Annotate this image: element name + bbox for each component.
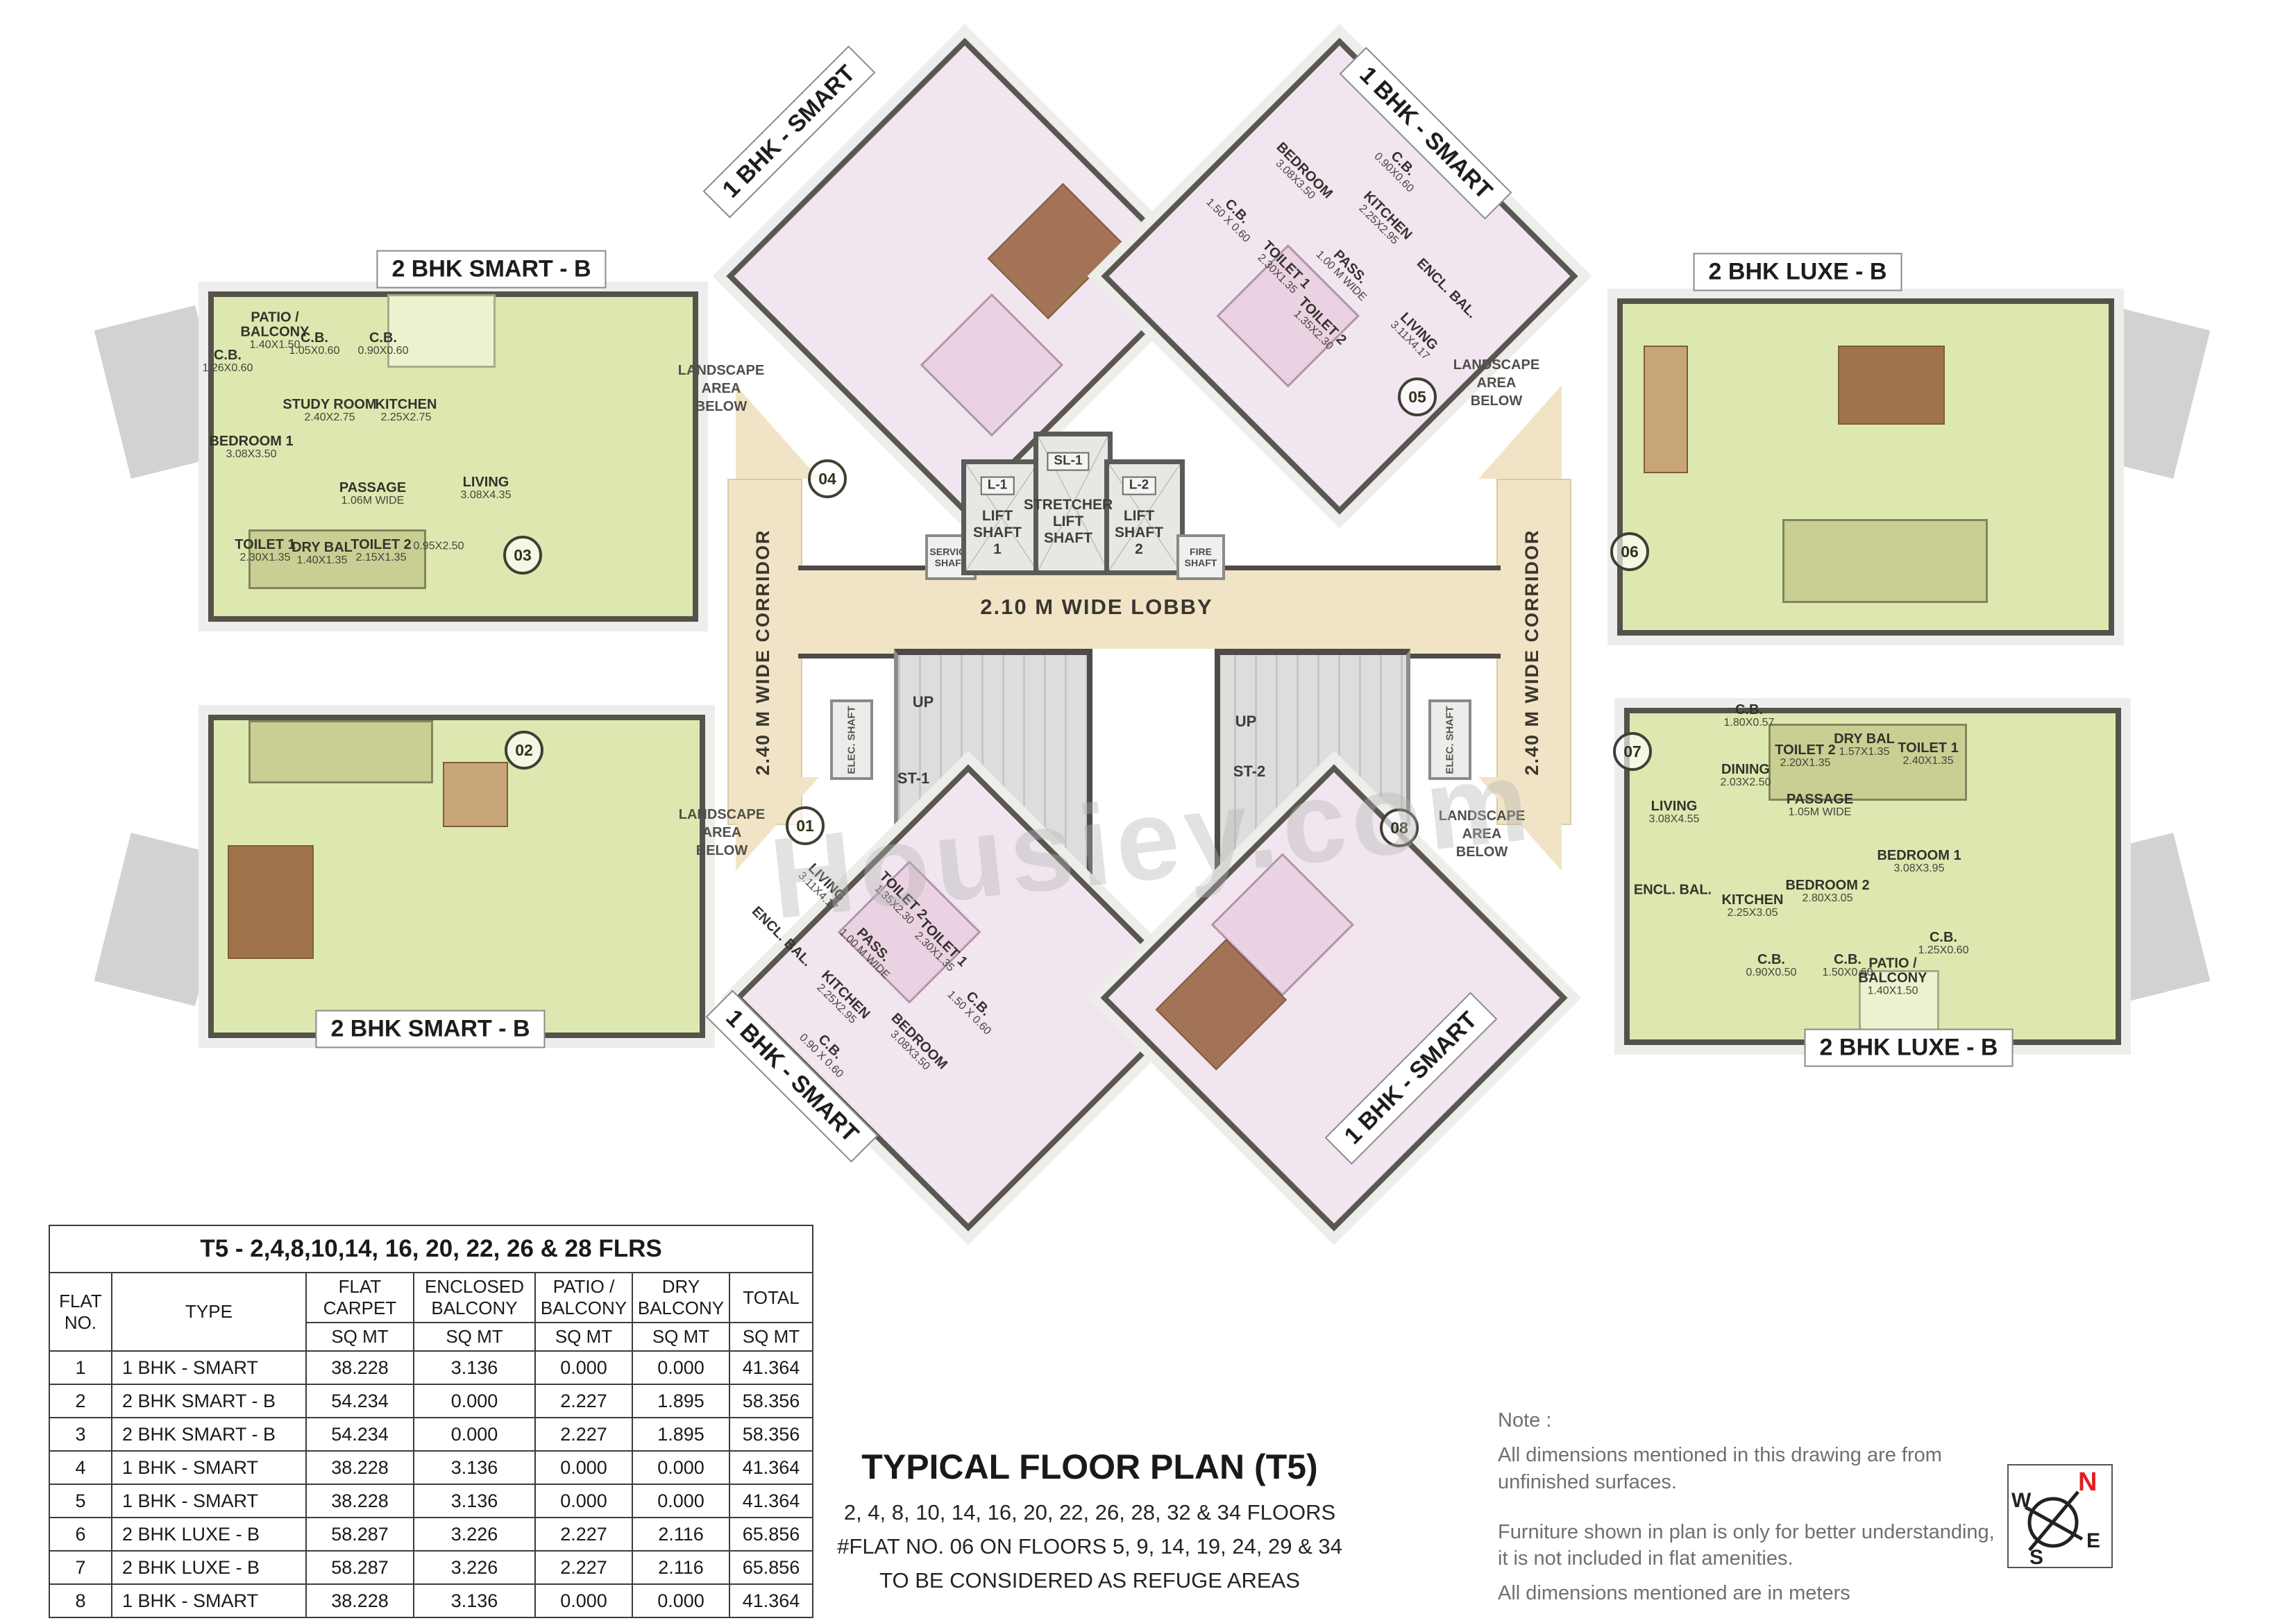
- furniture-sofa: [1644, 346, 1688, 473]
- cell-patio-balcony: 0.000: [535, 1451, 632, 1484]
- toilet-area: [248, 720, 433, 783]
- elec-shaft-label: ELEC. SHAFT: [846, 706, 858, 774]
- cell-total: 41.364: [729, 1451, 813, 1484]
- landscape-patch: [736, 385, 819, 479]
- unit-label: SQ MT: [306, 1323, 414, 1351]
- fire-shaft-label: FIRE SHAFT: [1179, 546, 1222, 568]
- col-flat-no: FLAT NO.: [49, 1273, 112, 1351]
- notes-heading: Note :: [1498, 1407, 2011, 1434]
- table-row: 2 2 BHK SMART - B 54.234 0.000 2.227 1.8…: [49, 1384, 813, 1418]
- cell-patio-balcony: 0.000: [535, 1484, 632, 1518]
- table-row: 7 2 BHK LUXE - B 58.287 3.226 2.227 2.11…: [49, 1551, 813, 1584]
- cell-dry-balcony: 1.895: [632, 1418, 729, 1451]
- notes-block: Note : All dimensions mentioned in this …: [1498, 1407, 2011, 1615]
- toilet-area: [248, 529, 426, 589]
- area-statement-table: T5 - 2,4,8,10,14, 16, 20, 22, 26 & 28 FL…: [49, 1225, 813, 1618]
- cell-patio-balcony: 0.000: [535, 1351, 632, 1384]
- col-total: TOTAL: [729, 1273, 813, 1323]
- cell-flat-carpet: 54.234: [306, 1384, 414, 1418]
- cell-dry-balcony: 2.116: [632, 1551, 729, 1584]
- compass-west: W: [2011, 1489, 2032, 1512]
- cell-patio-balcony: 2.227: [535, 1518, 632, 1551]
- flat-type-label: 2 BHK SMART - B: [376, 250, 606, 289]
- table-row: 4 1 BHK - SMART 38.228 3.136 0.000 0.000…: [49, 1451, 813, 1484]
- table-title: T5 - 2,4,8,10,14, 16, 20, 22, 26 & 28 FL…: [49, 1225, 813, 1273]
- cell-enclosed-balcony: 0.000: [414, 1418, 535, 1451]
- compass-north: N: [2078, 1468, 2097, 1497]
- cell-patio-balcony: 0.000: [535, 1584, 632, 1617]
- cell-enclosed-balcony: 3.136: [414, 1351, 535, 1384]
- furniture-table: [443, 762, 508, 827]
- patio-area: [387, 294, 496, 368]
- cell-flat-carpet: 38.228: [306, 1584, 414, 1617]
- note-line-3: All dimensions mentioned are in meters: [1498, 1580, 2011, 1606]
- cell-flat-carpet: 38.228: [306, 1351, 414, 1384]
- toilet-area: [1782, 519, 1988, 603]
- toilet-area: [1769, 724, 1967, 801]
- compass-icon: N W E S: [2009, 1465, 2111, 1567]
- cell-flat-no: 1: [49, 1351, 112, 1384]
- floor-plan-sheet: SERVICE SHAFT FIRE SHAFT L-1 LIFT SHAFT …: [0, 0, 2296, 1623]
- cell-dry-balcony: 1.895: [632, 1384, 729, 1418]
- refuge-line-2: TO BE CONSIDERED AS REFUGE AREAS: [826, 1567, 1353, 1595]
- cell-type: 1 BHK - SMART: [112, 1584, 306, 1617]
- flat-number-badge: 04: [808, 459, 847, 498]
- flat-02-block: [208, 715, 705, 1038]
- col-flat-carpet: FLAT CARPET: [306, 1273, 414, 1323]
- cell-total: 41.364: [729, 1351, 813, 1384]
- cell-total: 41.364: [729, 1584, 813, 1617]
- cell-flat-no: 2: [49, 1384, 112, 1418]
- cell-total: 41.364: [729, 1484, 813, 1518]
- flat-05-block: [1101, 37, 1578, 514]
- cell-flat-carpet: 54.234: [306, 1418, 414, 1451]
- cell-type: 2 BHK LUXE - B: [112, 1518, 306, 1551]
- floors-line: 2, 4, 8, 10, 14, 16, 20, 22, 26, 28, 32 …: [826, 1499, 1353, 1527]
- sheet-title: TYPICAL FLOOR PLAN (T5): [826, 1447, 1353, 1487]
- col-dry-balcony: DRY BALCONY: [632, 1273, 729, 1323]
- cell-flat-no: 8: [49, 1584, 112, 1617]
- cell-flat-carpet: 38.228: [306, 1484, 414, 1518]
- cell-enclosed-balcony: 3.226: [414, 1551, 535, 1584]
- cell-enclosed-balcony: 3.136: [414, 1584, 535, 1617]
- cell-flat-no: 7: [49, 1551, 112, 1584]
- cell-flat-no: 3: [49, 1418, 112, 1451]
- cell-dry-balcony: 2.116: [632, 1518, 729, 1551]
- table-row: 1 1 BHK - SMART 38.228 3.136 0.000 0.000…: [49, 1351, 813, 1384]
- cell-type: 1 BHK - SMART: [112, 1451, 306, 1484]
- flat-07-block: [1624, 708, 2121, 1045]
- cell-enclosed-balcony: 0.000: [414, 1384, 535, 1418]
- cell-type: 2 BHK LUXE - B: [112, 1551, 306, 1584]
- cell-type: 1 BHK - SMART: [112, 1351, 306, 1384]
- furniture-bed: [988, 183, 1124, 320]
- toilet-area: [1217, 244, 1360, 387]
- unit-label: SQ MT: [632, 1323, 729, 1351]
- cell-type: 1 BHK - SMART: [112, 1484, 306, 1518]
- cell-flat-no: 4: [49, 1451, 112, 1484]
- cell-total: 65.856: [729, 1518, 813, 1551]
- furniture-bed: [228, 845, 314, 959]
- landscape-patch: [1478, 385, 1562, 479]
- toilet-area: [920, 294, 1063, 436]
- table-row: 8 1 BHK - SMART 38.228 3.136 0.000 0.000…: [49, 1584, 813, 1617]
- flat-03-block: [208, 291, 698, 622]
- cell-flat-no: 6: [49, 1518, 112, 1551]
- cell-flat-carpet: 58.287: [306, 1551, 414, 1584]
- lift2-label: LIFT SHAFT 2: [1115, 508, 1163, 558]
- up-label-right: UP: [1235, 713, 1257, 730]
- st1-label: ST-1: [897, 770, 929, 787]
- flat-06-block: [1617, 298, 2114, 636]
- lift1-label: LIFT SHAFT 1: [973, 508, 1022, 558]
- table-row: 3 2 BHK SMART - B 54.234 0.000 2.227 1.8…: [49, 1418, 813, 1451]
- note-line-1: All dimensions mentioned in this drawing…: [1498, 1442, 2011, 1495]
- cell-type: 2 BHK SMART - B: [112, 1418, 306, 1451]
- lift2-tag: L-2: [1122, 477, 1156, 495]
- unit-label: SQ MT: [535, 1323, 632, 1351]
- flat-type-label: 2 BHK LUXE - B: [1694, 253, 1902, 291]
- col-type: TYPE: [112, 1273, 306, 1351]
- cell-flat-carpet: 38.228: [306, 1451, 414, 1484]
- cell-flat-no: 5: [49, 1484, 112, 1518]
- unit-label: SQ MT: [729, 1323, 813, 1351]
- cell-total: 58.356: [729, 1384, 813, 1418]
- title-block: TYPICAL FLOOR PLAN (T5) 2, 4, 8, 10, 14,…: [826, 1447, 1353, 1594]
- fire-shaft: FIRE SHAFT: [1176, 534, 1225, 580]
- elec-shaft-left: ELEC. SHAFT: [830, 699, 873, 780]
- cell-enclosed-balcony: 3.226: [414, 1518, 535, 1551]
- stretcher-label: STRETCHER LIFT SHAFT: [1024, 497, 1113, 547]
- cell-dry-balcony: 0.000: [632, 1451, 729, 1484]
- col-enclosed-balcony: ENCLOSED BALCONY: [414, 1273, 535, 1323]
- unit-label: SQ MT: [414, 1323, 535, 1351]
- cell-type: 2 BHK SMART - B: [112, 1384, 306, 1418]
- cell-patio-balcony: 2.227: [535, 1418, 632, 1451]
- cell-dry-balcony: 0.000: [632, 1351, 729, 1384]
- cell-enclosed-balcony: 3.136: [414, 1451, 535, 1484]
- cell-patio-balcony: 2.227: [535, 1384, 632, 1418]
- cell-dry-balcony: 0.000: [632, 1484, 729, 1518]
- cell-total: 65.856: [729, 1551, 813, 1584]
- compass-rose: N W E S: [2007, 1464, 2113, 1568]
- refuge-line-1: #FLAT NO. 06 ON FLOORS 5, 9, 14, 19, 24,…: [826, 1533, 1353, 1561]
- furniture-bed: [1838, 346, 1945, 425]
- cell-enclosed-balcony: 3.136: [414, 1484, 535, 1518]
- stretcher-tag: SL-1: [1047, 452, 1089, 471]
- col-patio-balcony: PATIO / BALCONY: [535, 1273, 632, 1323]
- compass-east: E: [2086, 1529, 2100, 1552]
- cell-flat-carpet: 58.287: [306, 1518, 414, 1551]
- table-row: 5 1 BHK - SMART 38.228 3.136 0.000 0.000…: [49, 1484, 813, 1518]
- cell-patio-balcony: 2.227: [535, 1551, 632, 1584]
- lobby-label: 2.10 M WIDE LOBBY: [980, 595, 1213, 619]
- table-row: 6 2 BHK LUXE - B 58.287 3.226 2.227 2.11…: [49, 1518, 813, 1551]
- note-line-2: Furniture shown in plan is only for bett…: [1498, 1519, 2011, 1572]
- cell-total: 58.356: [729, 1418, 813, 1451]
- lift1-tag: L-1: [981, 477, 1015, 495]
- up-label-left: UP: [913, 694, 934, 711]
- cell-dry-balcony: 0.000: [632, 1584, 729, 1617]
- patio-area: [1859, 970, 1939, 1033]
- compass-south: S: [2029, 1546, 2043, 1567]
- corridor-label-left: 2.40 M WIDE CORRIDOR: [753, 529, 774, 775]
